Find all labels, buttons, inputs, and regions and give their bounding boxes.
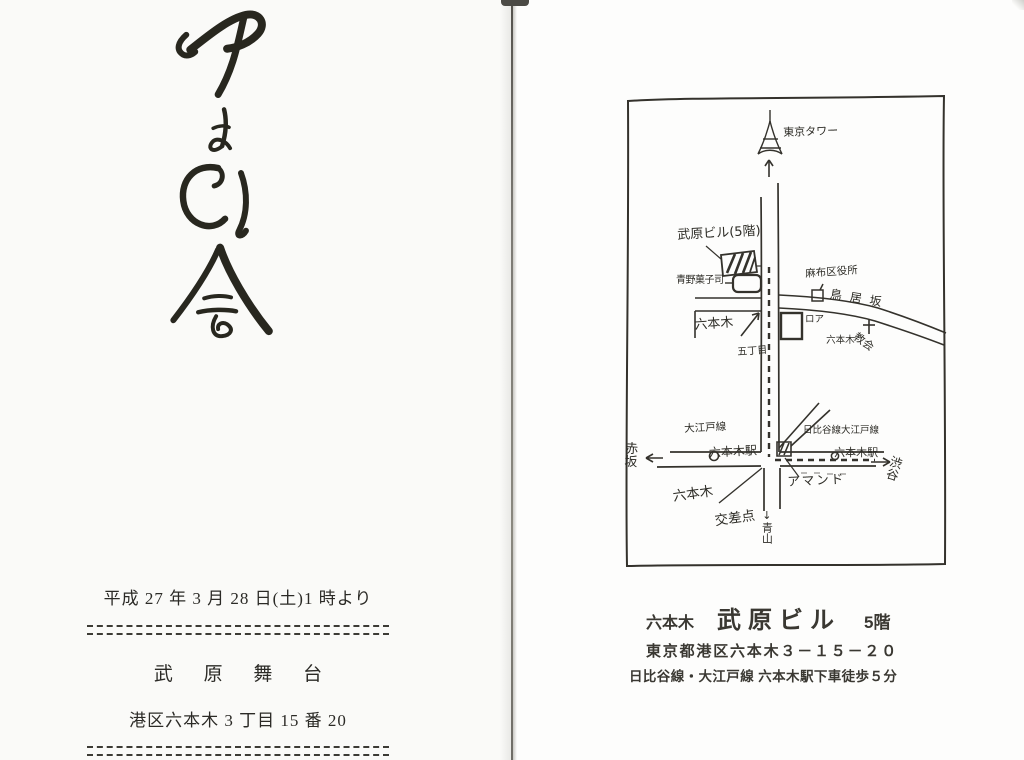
address-area: 六本木 [646, 609, 694, 633]
road-main-left-bottom [657, 466, 761, 467]
left-arrow-icon [646, 454, 663, 462]
page-fold-shadow [500, 0, 511, 760]
calligraphy-yo [210, 109, 230, 150]
calligraphy-i [183, 167, 246, 235]
up-arrow-icon [765, 160, 773, 177]
double-rule [87, 746, 389, 756]
map-label-line: 大江戸線 [684, 421, 727, 435]
map-label-line: 日比谷線大江戸線 [803, 425, 879, 436]
map-label-line: 六本木 [694, 315, 734, 333]
address-headline: 六本木 武原ビル 5階 [646, 600, 968, 635]
address-floor: 5階 [864, 608, 890, 633]
map-label-roppongi-5chome: 六本木 五丁目 [694, 314, 768, 362]
calligraphy-yayoikai [128, 2, 348, 360]
map-label-line: 六本木駅 [834, 447, 878, 459]
map-label-akasaka: 赤坂 [621, 441, 637, 468]
map-label-oedo-station: 大江戸線 六本木駅 [684, 420, 757, 461]
map-label-hibiya-oedo-station: 日比谷線大江戸線 六本木駅 [803, 426, 879, 460]
venue-address: 港区六本木 3 丁目 15 番 20 [43, 706, 433, 731]
event-info-block: 平成 27 年 3 月 28 日(土)1 時より 武 原 舞 台 港区六本木 3… [43, 575, 433, 756]
map-label-line: ロア [805, 314, 824, 325]
aono-shop-icon [725, 275, 761, 292]
scan-corner-artifact [1012, 0, 1024, 10]
map-label-aono-confectionery: 青野菓子司 [676, 275, 724, 286]
tokyo-tower-icon [758, 110, 782, 154]
address-building: 武原ビル [717, 600, 841, 635]
venue-name: 武 原 舞 台 [43, 659, 433, 686]
map-label-line: 六本木駅 [709, 443, 758, 459]
calligraphy-kai [173, 248, 268, 337]
event-date: 平成 27 年 3 月 28 日(土)1 時より [43, 584, 433, 609]
map-label-tokyo-tower: 東京タワー [783, 125, 838, 139]
takehara-building-icon [706, 246, 761, 276]
address-block: 六本木 武原ビル 5階 東京都港区六本木３－１５－２０ 日比谷線・大江戸線 六本… [628, 600, 968, 685]
address-street: 東京都港区六本木３－１５－２０ [646, 640, 968, 661]
page-fold-highlight [513, 0, 517, 760]
map-label-roa-roppongi: ロア 六本木 [805, 315, 855, 347]
road-vertical-right [778, 183, 779, 452]
double-rule [87, 625, 389, 635]
map-label-line: 五丁目 [737, 345, 768, 358]
map-label-aoyama: ↓青山 [760, 509, 772, 544]
address-access: 日比谷線・大江戸線 六本木駅下車徒歩５分 [629, 665, 968, 685]
roa-roppongi-icon [781, 313, 802, 339]
map-linework [613, 85, 958, 575]
page-fold-top-shadow [501, 0, 529, 6]
hand-drawn-map: 東京タワー 武原ビル(5階) 青野菓子司 麻布区役所 鳥居坂 六本木 五丁目 ロ… [613, 85, 958, 575]
calligraphy-ya [179, 14, 262, 94]
